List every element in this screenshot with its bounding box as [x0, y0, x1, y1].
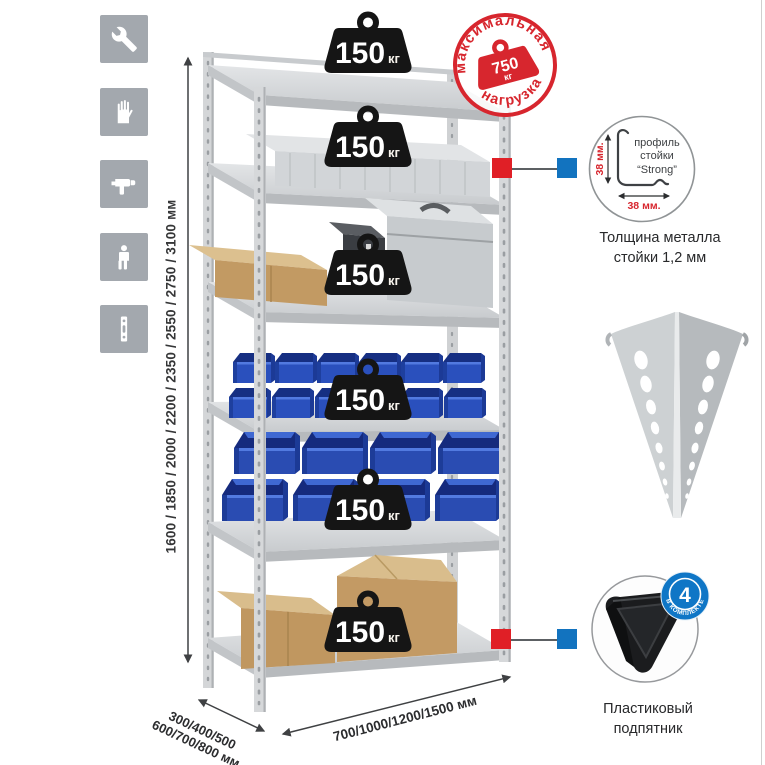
infographic-canvas: 150 кг 150 кг 150 кг 150 кг 150 кг: [0, 0, 765, 765]
load-unit: кг: [388, 398, 401, 413]
connector-line-bottom: [510, 639, 559, 641]
profile-caption-line2: стойки 1,2 мм: [580, 249, 740, 269]
connector-line-top: [510, 168, 559, 170]
quantity-badge: 4 В КОМПЛЕКТЕ: [658, 569, 712, 623]
strong-profile-circle: 38 мм. 38 мм. профиль стойки “Strong”: [584, 112, 702, 230]
red-marker-bottom: [491, 629, 511, 649]
corner-post-image: [595, 298, 760, 528]
height-dimension-label: 1600 / 1850 / 2000 / 2200 / 2350 / 2550 …: [164, 117, 179, 637]
load-unit: кг: [388, 630, 401, 645]
profile-label: профиль стойки “Strong”: [634, 137, 680, 176]
gloves-icon: [109, 97, 139, 127]
load-value: 150: [335, 494, 385, 527]
load-value: 150: [335, 131, 385, 164]
load-unit: кг: [388, 273, 401, 288]
load-unit: кг: [388, 51, 401, 66]
svg-text:профиль: профиль: [634, 137, 680, 149]
blue-marker-bottom: [557, 629, 577, 649]
wrench-icon: [109, 24, 139, 54]
load-value: 150: [335, 384, 385, 417]
profile-caption: Толщина металла стойки 1,2 мм: [580, 229, 740, 268]
foot-caption: Пластиковый подпятник: [585, 700, 711, 739]
load-value: 150: [335, 259, 385, 292]
page-edge-line: [761, 0, 762, 765]
icon-tile-wrench: [100, 15, 148, 63]
foot-caption-line1: Пластиковый: [585, 700, 711, 720]
perforated-profile-icon: [109, 314, 139, 344]
foot-caption-line2: подпятник: [585, 720, 711, 740]
svg-text:“Strong”: “Strong”: [637, 164, 677, 176]
icon-tile-perforated-profile: [100, 305, 148, 353]
weight-icon: 150 кг: [324, 109, 411, 168]
load-unit: кг: [388, 145, 401, 160]
svg-text:стойки: стойки: [640, 150, 674, 162]
weight-icon: 150 кг: [324, 15, 411, 74]
icon-tile-gloves: [100, 88, 148, 136]
load-value: 150: [335, 37, 385, 70]
load-unit: кг: [388, 508, 401, 523]
profile-dim-horizontal-label: 38 мм.: [627, 200, 660, 212]
icon-tile-person: [100, 233, 148, 281]
profile-dim-vertical-label: 38 мм.: [594, 142, 606, 175]
drill-icon: [109, 169, 139, 199]
blue-marker-top: [557, 158, 577, 178]
icon-tile-drill: [100, 160, 148, 208]
profile-caption-line1: Толщина металла: [580, 229, 740, 249]
badge-count: 4: [679, 584, 691, 607]
person-icon: [109, 242, 139, 272]
load-value: 150: [335, 616, 385, 649]
red-marker-top: [492, 158, 512, 178]
max-load-stamp: максимальная нагрузка 750 кг: [435, 0, 575, 135]
